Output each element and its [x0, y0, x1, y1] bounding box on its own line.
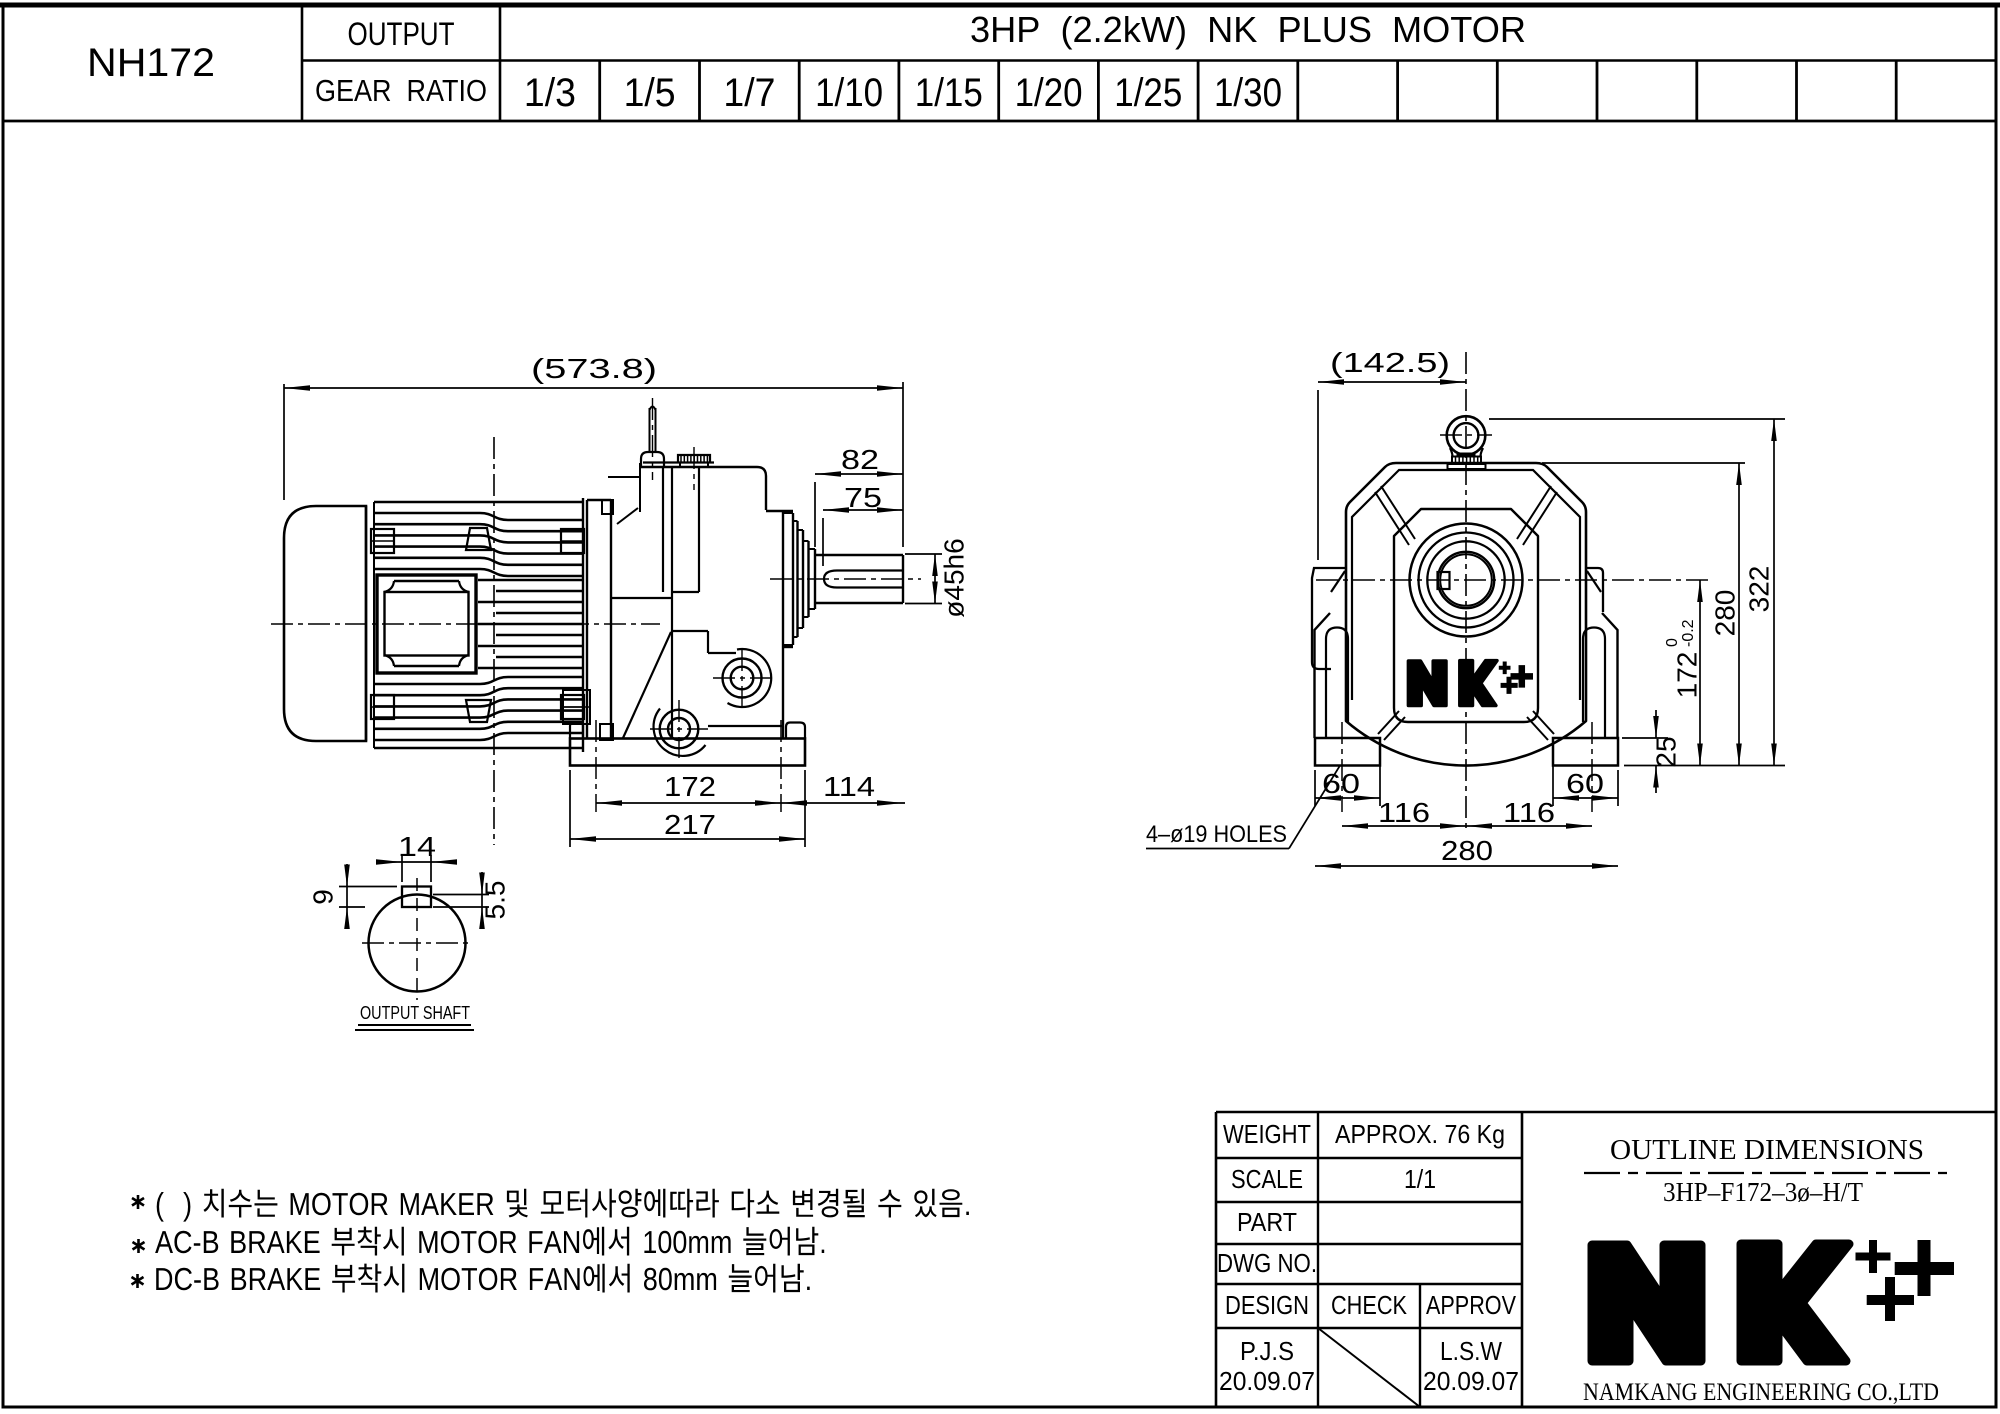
- svg-text:1/30: 1/30: [1214, 71, 1282, 115]
- svg-text:ø45h6: ø45h6: [938, 538, 969, 617]
- svg-text:P.J.S: P.J.S: [1240, 1336, 1294, 1366]
- svg-text:OUTPUT: OUTPUT: [348, 16, 455, 52]
- svg-text:SCALE: SCALE: [1231, 1164, 1303, 1194]
- svg-text:NH172: NH172: [87, 41, 215, 85]
- svg-text:APPROV: APPROV: [1426, 1290, 1517, 1320]
- svg-text:CHECK: CHECK: [1331, 1290, 1408, 1320]
- svg-text:(142.5): (142.5): [1330, 347, 1450, 378]
- svg-text:1/5: 1/5: [624, 71, 676, 115]
- svg-text:75: 75: [844, 482, 882, 513]
- svg-text:1/20: 1/20: [1015, 71, 1083, 115]
- svg-text:1/10: 1/10: [815, 71, 883, 115]
- svg-text:322: 322: [1743, 566, 1774, 613]
- svg-text:60: 60: [1566, 768, 1604, 799]
- svg-text:PART: PART: [1237, 1207, 1297, 1237]
- svg-text:DESIGN: DESIGN: [1225, 1290, 1309, 1320]
- svg-text:280: 280: [1709, 590, 1740, 637]
- svg-text:172: 172: [664, 771, 716, 802]
- svg-text:(573.8): (573.8): [531, 353, 657, 384]
- svg-text:-0.2: -0.2: [1680, 619, 1697, 647]
- svg-text:82: 82: [841, 444, 879, 475]
- svg-text:NAMKANG ENGINEERING CO.,LTD: NAMKANG ENGINEERING CO.,LTD: [1583, 1379, 1939, 1406]
- svg-text:GEAR RATIO: GEAR RATIO: [315, 73, 487, 108]
- svg-text:217: 217: [664, 809, 716, 840]
- svg-text:20.09.07: 20.09.07: [1219, 1366, 1315, 1396]
- svg-text:WEIGHT: WEIGHT: [1223, 1119, 1311, 1149]
- svg-text:OUTPUT SHAFT: OUTPUT SHAFT: [360, 1003, 470, 1023]
- svg-text:116: 116: [1378, 797, 1430, 828]
- svg-text:25: 25: [1650, 736, 1681, 767]
- svg-text:L.S.W: L.S.W: [1440, 1336, 1502, 1366]
- svg-text:4–ø19 HOLES: 4–ø19 HOLES: [1146, 821, 1287, 848]
- svg-text:1/7: 1/7: [723, 71, 775, 115]
- svg-text:60: 60: [1322, 768, 1360, 799]
- svg-text:0: 0: [1664, 638, 1681, 647]
- svg-text:9: 9: [307, 889, 338, 905]
- svg-text:3HP–F172–3ø–H/T: 3HP–F172–3ø–H/T: [1663, 1177, 1863, 1207]
- svg-text:114: 114: [823, 771, 875, 802]
- svg-text:1/25: 1/25: [1114, 71, 1182, 115]
- svg-text:1/3: 1/3: [524, 71, 576, 115]
- svg-text:OUTLINE DIMENSIONS: OUTLINE DIMENSIONS: [1610, 1134, 1924, 1166]
- svg-text:1/15: 1/15: [915, 71, 983, 115]
- svg-text:280: 280: [1441, 835, 1493, 866]
- svg-text:116: 116: [1503, 797, 1555, 828]
- svg-text:172: 172: [1671, 652, 1702, 699]
- svg-text:20.09.07: 20.09.07: [1423, 1366, 1519, 1396]
- svg-text:1/1: 1/1: [1404, 1164, 1436, 1194]
- svg-text:APPROX. 76 Kg: APPROX. 76 Kg: [1335, 1119, 1505, 1149]
- svg-text:3HP (2.2kW) NK PLUS MOTOR: 3HP (2.2kW) NK PLUS MOTOR: [970, 9, 1526, 50]
- svg-text:DWG NO.: DWG NO.: [1217, 1248, 1317, 1278]
- svg-text:5.5: 5.5: [479, 881, 510, 920]
